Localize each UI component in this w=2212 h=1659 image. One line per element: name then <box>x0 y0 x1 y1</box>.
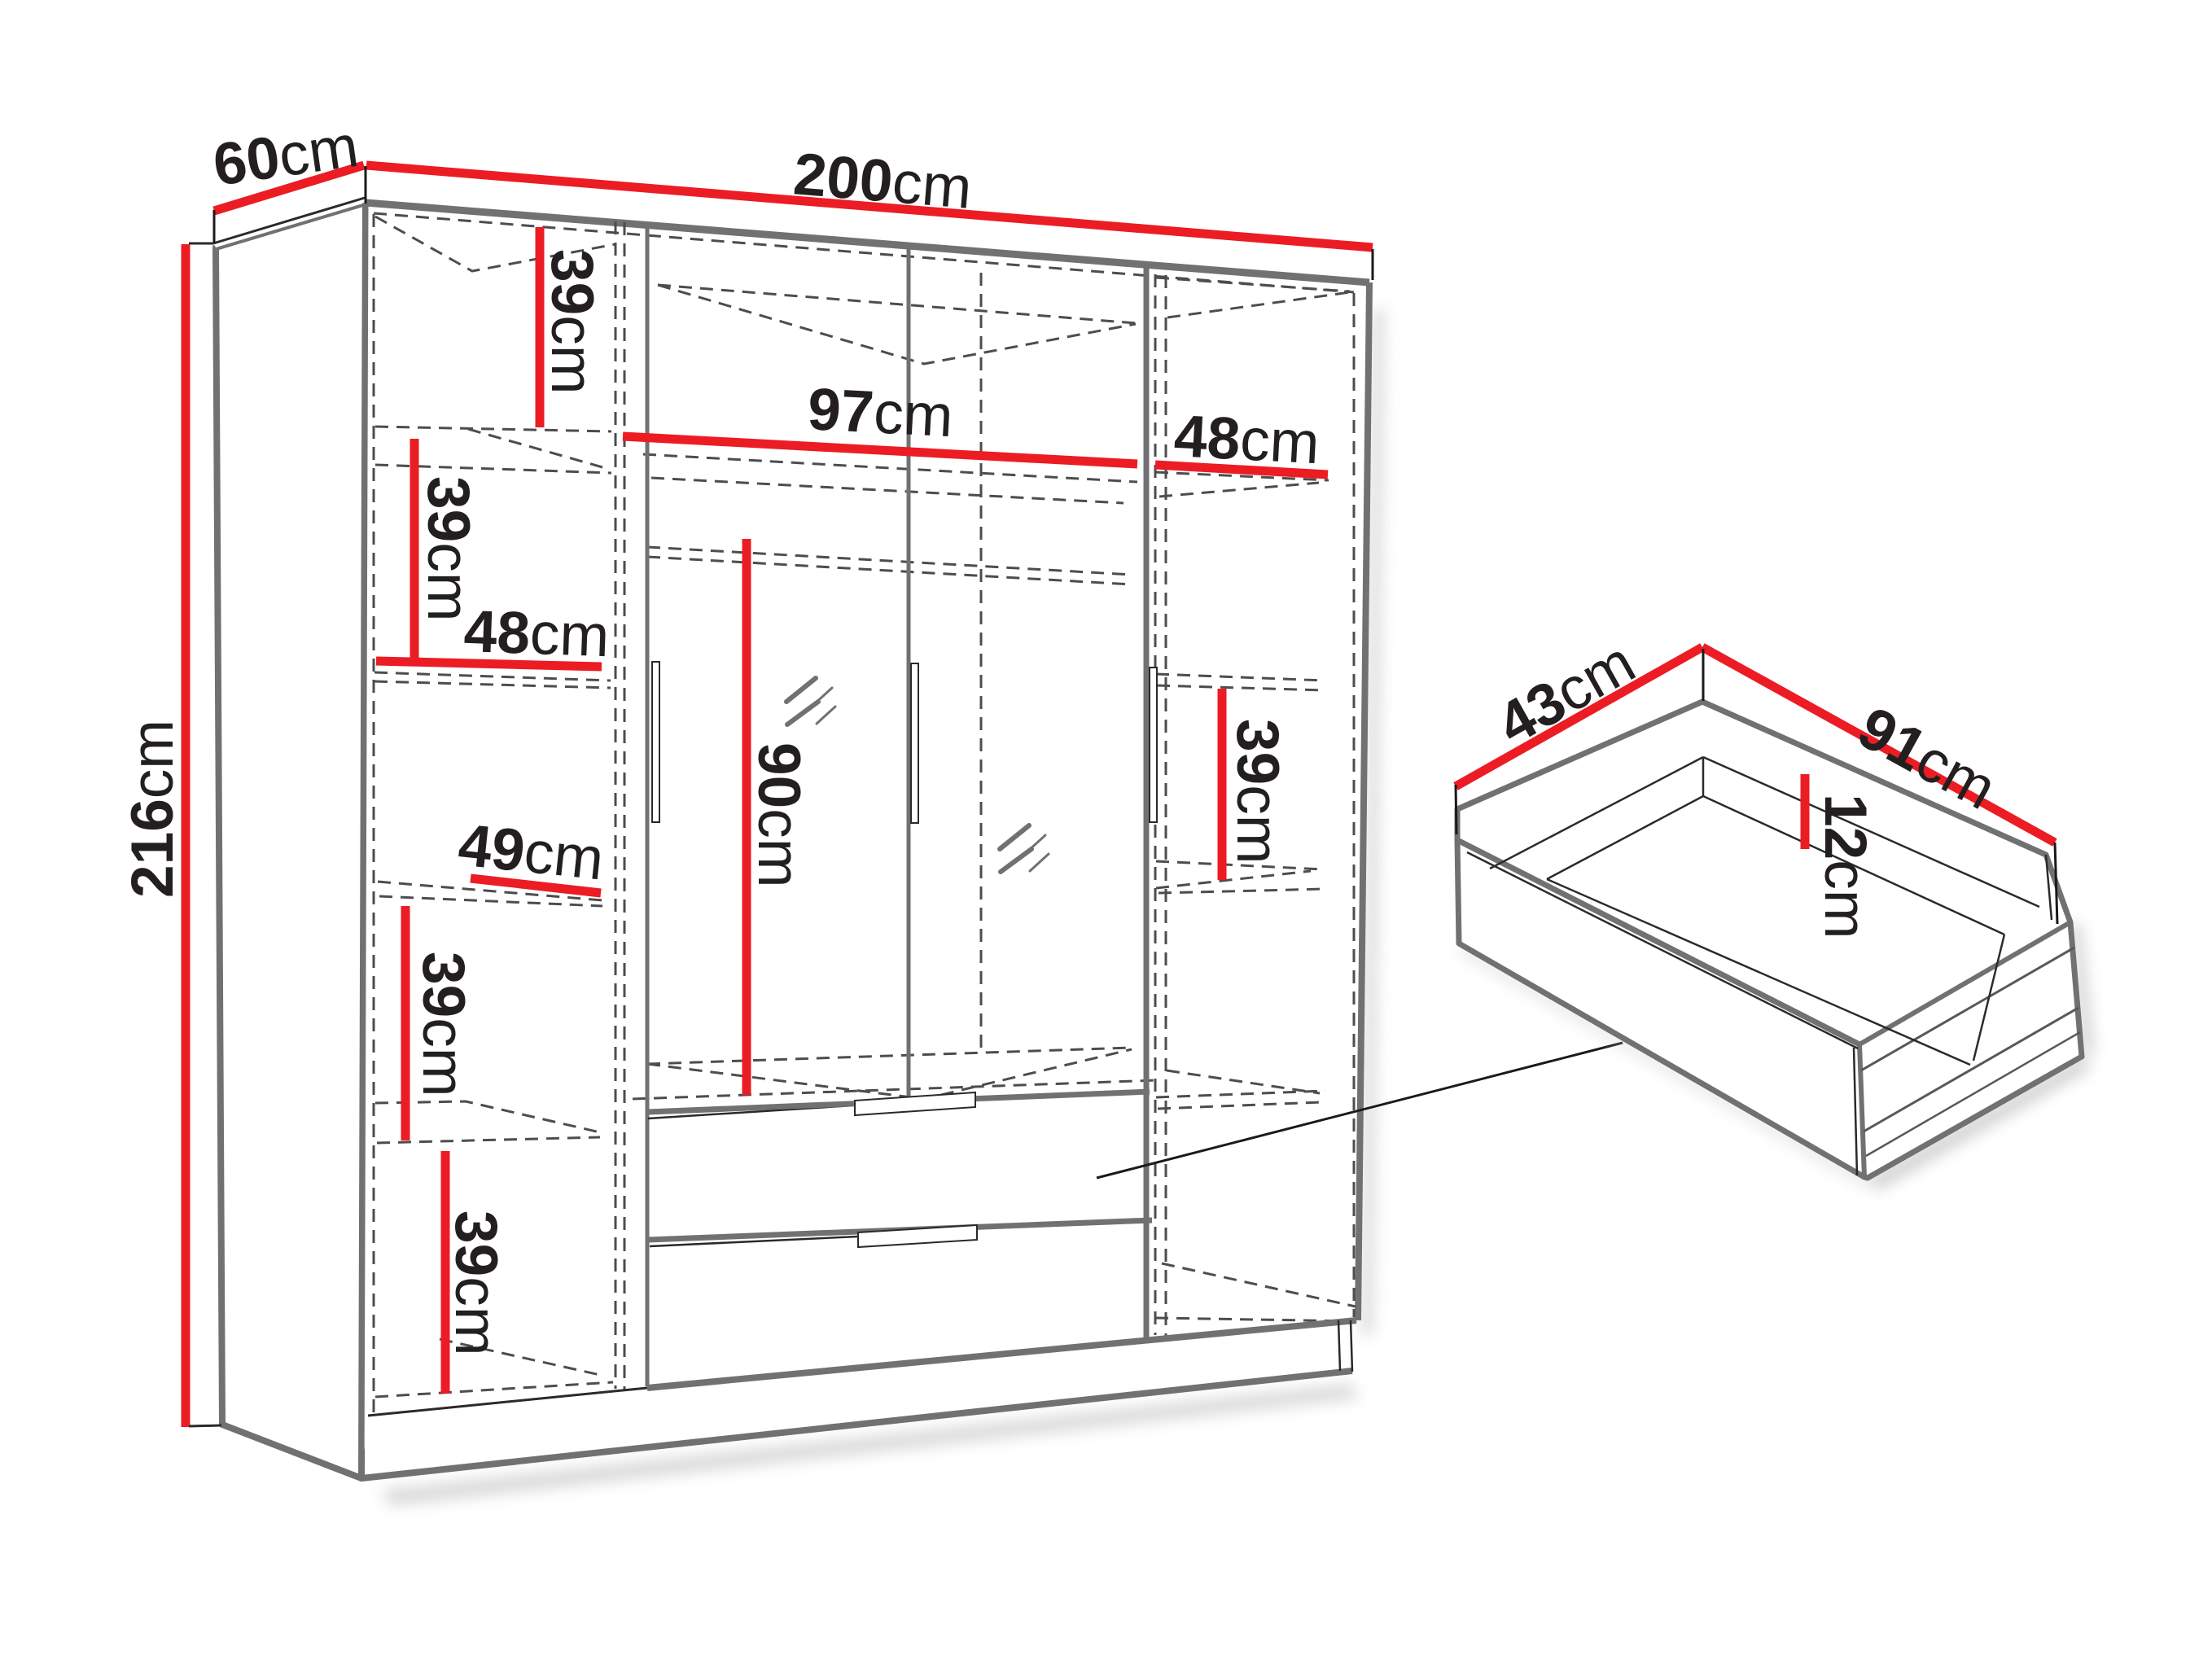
svg-text:39cm: 39cm <box>410 952 476 1097</box>
svg-text:39cm: 39cm <box>539 249 605 395</box>
svg-text:39cm: 39cm <box>1224 719 1290 865</box>
svg-text:12cm: 12cm <box>1812 794 1878 939</box>
svg-text:97cm: 97cm <box>806 376 955 449</box>
svg-text:48cm: 48cm <box>462 598 610 669</box>
svg-text:48cm: 48cm <box>1172 403 1321 476</box>
svg-text:90cm: 90cm <box>746 742 812 888</box>
svg-text:39cm: 39cm <box>443 1210 509 1356</box>
svg-text:216cm: 216cm <box>120 720 186 898</box>
